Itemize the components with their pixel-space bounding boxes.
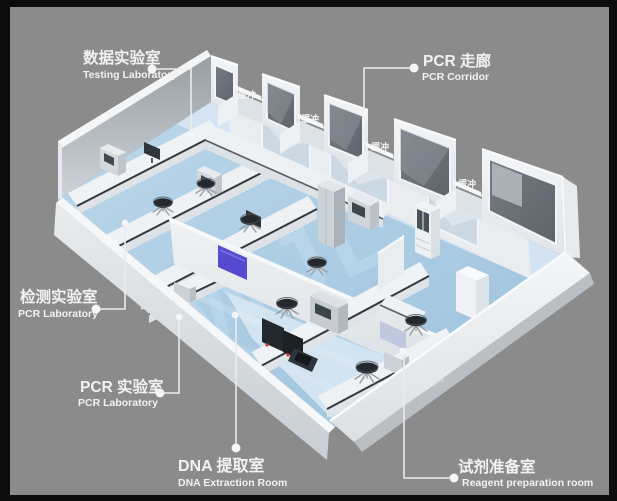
callout-title: 数据实验室 <box>83 48 161 67</box>
buffer-label-3: 缓冲 <box>371 141 389 152</box>
callout-title: DNA 提取室 <box>178 456 265 475</box>
callout-title: PCR 走廊 <box>423 51 492 70</box>
callout-subtitle: DNA Extraction Room <box>178 477 287 489</box>
callout-subtitle: PCR Laboratory <box>78 397 158 409</box>
callout-title: PCR 实验室 <box>80 377 164 396</box>
callout-title: 检测实验室 <box>20 287 98 306</box>
buffer-label-1: 缓冲 <box>238 89 256 100</box>
buffer-label-4: 缓冲 <box>458 178 476 189</box>
lab-scene-svg: WJL <box>0 0 617 501</box>
buffer-label-2: 缓冲 <box>301 113 319 124</box>
callout-subtitle: PCR Corridor <box>422 71 489 83</box>
callout-subtitle: Testing Laboratory <box>83 69 177 81</box>
callout-title: 试剂准备室 <box>458 457 536 476</box>
lab-3d-illustration: WJL <box>0 0 617 501</box>
callout-subtitle: PCR Laboratory <box>18 308 98 320</box>
callout-subtitle: Reagent preparation room <box>462 477 593 489</box>
